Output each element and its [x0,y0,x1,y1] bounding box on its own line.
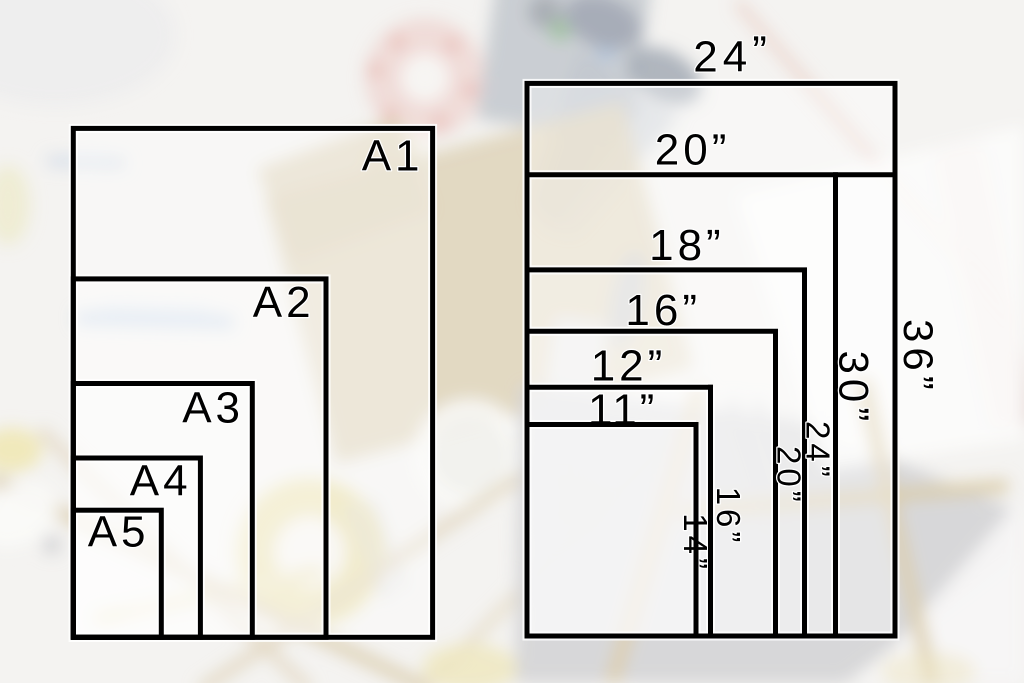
svg-text:30”: 30” [830,351,877,427]
svg-text:A4: A4 [130,456,192,505]
svg-text:24”: 24” [693,28,772,82]
svg-text:A5: A5 [88,508,150,557]
svg-text:16”: 16” [710,487,747,547]
svg-text:A1: A1 [362,131,424,180]
svg-text:A3: A3 [182,384,244,433]
svg-text:18”: 18” [649,221,725,270]
svg-text:36”: 36” [895,319,942,395]
svg-text:20”: 20” [655,126,731,175]
svg-text:20”: 20” [770,446,807,506]
svg-text:A2: A2 [253,278,315,327]
svg-text:11”: 11” [588,386,657,435]
svg-text:16”: 16” [625,286,701,335]
svg-text:12”: 12” [591,342,667,391]
